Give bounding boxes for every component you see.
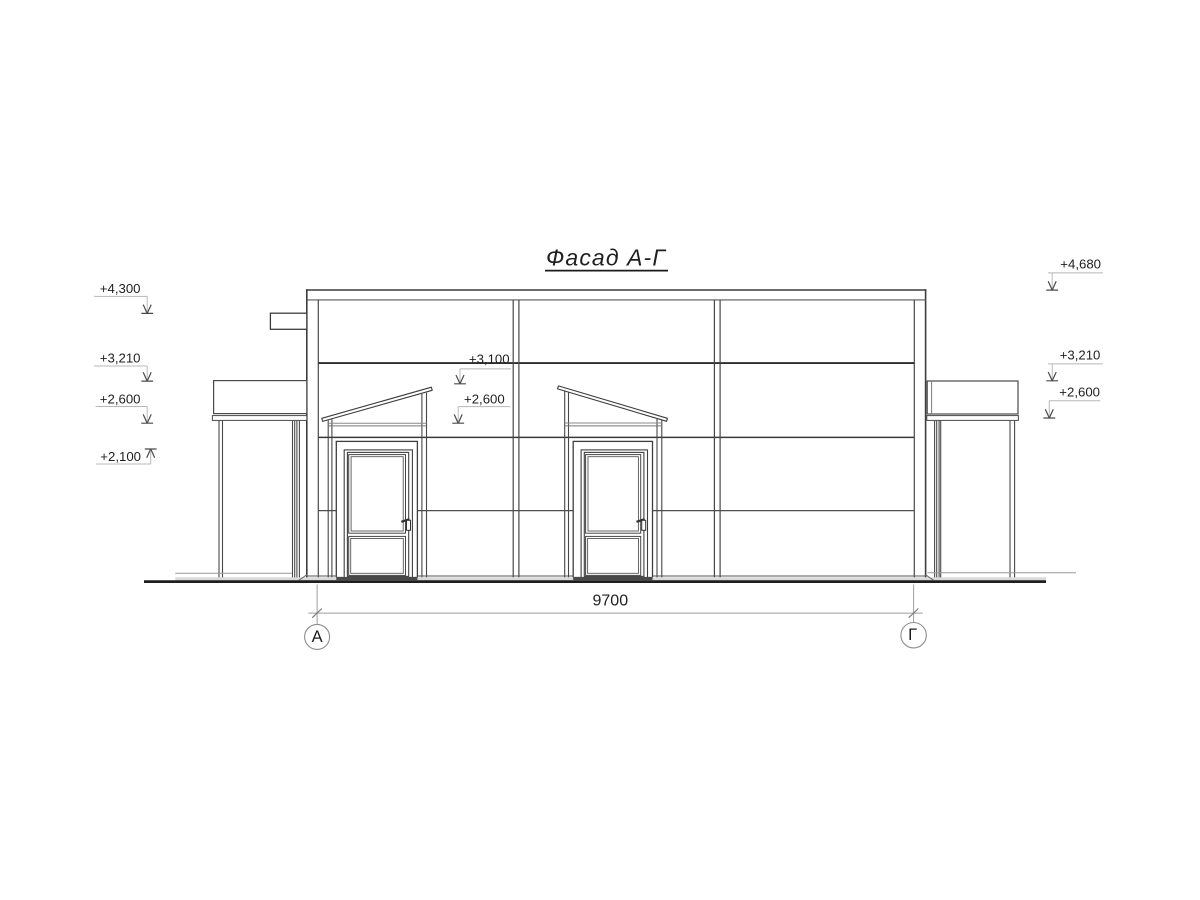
svg-text:+4,680: +4,680 (1060, 257, 1101, 272)
svg-text:+2,600: +2,600 (100, 391, 141, 406)
svg-text:+2,100: +2,100 (100, 449, 141, 464)
svg-text:+3,210: +3,210 (1060, 348, 1101, 363)
svg-text:+3,210: +3,210 (100, 351, 141, 366)
svg-text:Г: Г (908, 626, 917, 644)
svg-text:+3,100: +3,100 (469, 351, 510, 366)
svg-text:+4,300: +4,300 (100, 281, 141, 296)
svg-text:9700: 9700 (593, 593, 629, 610)
svg-text:А: А (312, 628, 323, 646)
svg-text:Фасад А-Г: Фасад А-Г (546, 245, 666, 271)
svg-text:+2,600: +2,600 (1059, 385, 1100, 400)
svg-text:+2,600: +2,600 (464, 392, 505, 407)
